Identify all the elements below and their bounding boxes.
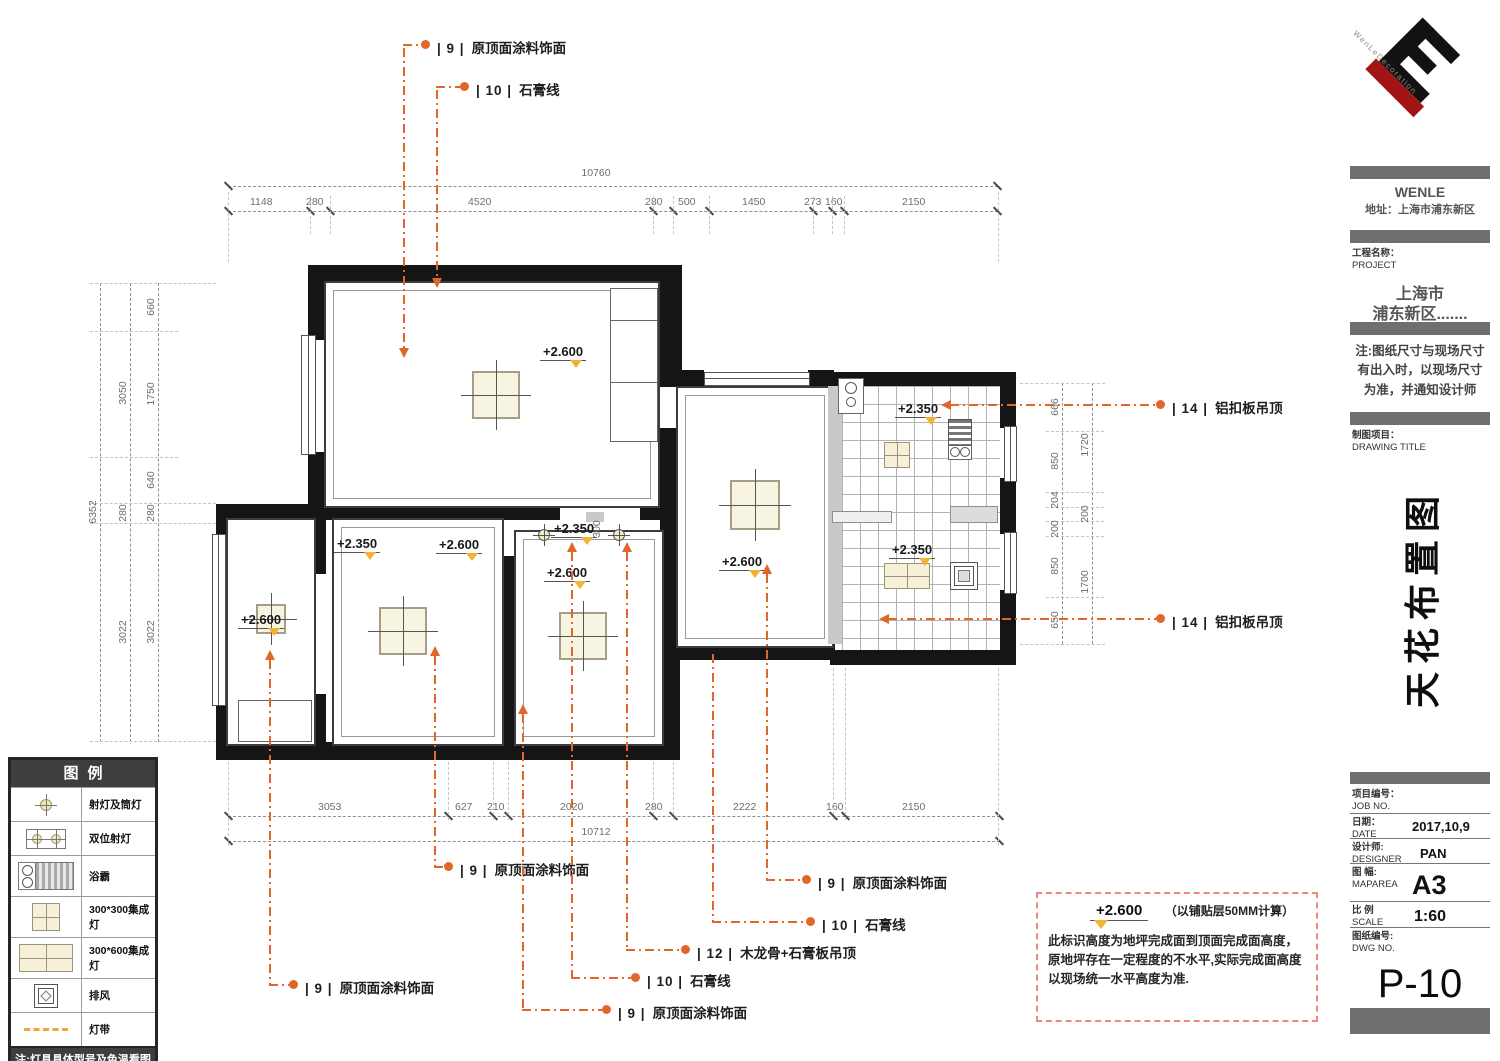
dimension-label: 3050 <box>117 381 129 404</box>
counter <box>950 506 998 523</box>
extension-line <box>833 668 834 820</box>
company-address: 地址：上海市浦东新区 <box>1350 201 1490 217</box>
window <box>301 335 316 455</box>
leader-line <box>766 574 768 880</box>
arrow-up-icon <box>430 646 440 656</box>
field-divider <box>1350 813 1490 814</box>
note-elevation: +2.600 <box>1090 902 1148 921</box>
legend-title: 图例 <box>11 760 155 787</box>
arrow-up-icon <box>622 542 632 552</box>
leader-dot-icon <box>602 1005 611 1014</box>
dimension-label: 1148 <box>250 196 273 208</box>
extension-line <box>1020 383 1105 384</box>
extension-line <box>673 762 674 820</box>
bath-heater-fans <box>948 445 972 460</box>
leader-dot-icon <box>1156 400 1165 409</box>
dimension-label: 160 <box>826 801 844 813</box>
elevation-triangle-icon <box>574 581 586 589</box>
field-divider <box>1350 863 1490 864</box>
legend-label: 排风 <box>81 979 155 1012</box>
divider-bar <box>1350 412 1490 425</box>
extension-line <box>493 762 494 820</box>
project-label: 工程名称：PROJECT <box>1352 248 1400 273</box>
dimension-label: 280 <box>117 504 129 522</box>
extension-line <box>998 668 999 846</box>
extension-line <box>448 762 449 820</box>
dimension-label: 640 <box>145 471 157 489</box>
dimension-line <box>100 283 101 742</box>
spotlight <box>613 529 625 541</box>
dimension-label: 660 <box>145 298 157 316</box>
ceiling-lamp <box>730 480 780 530</box>
dimension-label: 210 <box>487 801 505 813</box>
dimension-line <box>1062 383 1063 644</box>
dimension-label: 1720 <box>1079 433 1091 456</box>
bath-heater <box>948 419 972 447</box>
leader-dot-icon <box>444 862 453 871</box>
callout: | 14 |铝扣板吊顶 <box>1172 397 1283 417</box>
dimension-label: 6352 <box>87 500 99 523</box>
bath-heater-icon <box>11 856 81 896</box>
light-strip-icon <box>11 1013 81 1046</box>
elevation-triangle-icon <box>570 360 582 368</box>
dimension-line <box>228 841 1000 842</box>
leader-line <box>571 977 631 979</box>
arrow-down-icon <box>432 278 442 288</box>
leader-dot-icon <box>802 875 811 884</box>
arrow-left-icon <box>879 614 889 624</box>
field-job-no-label: 项目编号：JOB NO. <box>1352 789 1400 814</box>
arrow-up-icon <box>265 650 275 660</box>
leader-line <box>269 660 271 986</box>
legend-label: 射灯及筒灯 <box>81 788 155 821</box>
field-divider <box>1350 927 1490 928</box>
extension-line <box>998 192 999 262</box>
wall <box>308 265 324 340</box>
wall <box>308 265 682 281</box>
leader-line <box>434 656 436 868</box>
dimension-label: 2150 <box>902 196 925 208</box>
callout: | 9 |原顶面涂料饰面 <box>460 859 589 879</box>
callout: | 12 |木龙骨+石膏板吊顶 <box>697 942 856 962</box>
field-dwg-no-value: P-10 <box>1350 962 1490 1007</box>
elevation-triangle-icon <box>749 570 761 578</box>
company-logo: WenLeDecoration <box>1358 12 1474 138</box>
window <box>704 372 810 386</box>
dimension-label: 500 <box>678 196 696 208</box>
dimension-label: 1750 <box>145 382 157 405</box>
stove-vent <box>838 378 864 414</box>
spotlight <box>538 529 550 541</box>
legend-label: 300*600集成灯 <box>81 938 155 978</box>
field-scale-label: 比 例SCALE <box>1352 905 1383 930</box>
dimension-label: 160 <box>825 196 843 208</box>
legend-row: 浴霸 <box>11 855 155 896</box>
extension-line <box>90 331 178 332</box>
leader-line <box>522 714 524 1010</box>
wardrobe <box>610 382 658 442</box>
divider-bar <box>1350 166 1490 179</box>
dimension-line <box>158 283 159 742</box>
legend-row: 射灯及筒灯 <box>11 787 155 821</box>
leader-line <box>269 984 289 986</box>
window <box>212 534 226 706</box>
dimension-label: 3022 <box>117 620 129 643</box>
divider-bar <box>1350 1008 1490 1034</box>
dimension-label: 280 <box>306 196 324 208</box>
elevation-marker: +2.600 <box>238 612 284 629</box>
leader-line <box>888 618 1156 620</box>
elevation-marker: +2.600 <box>544 565 590 582</box>
legend-row: 300*300集成灯 <box>11 896 155 937</box>
legend-label: 浴霸 <box>81 856 155 896</box>
field-divider <box>1350 838 1490 839</box>
extension-line <box>330 196 331 234</box>
leader-line <box>950 404 1156 406</box>
legend-row: 灯带 <box>11 1012 155 1046</box>
extension-line <box>90 741 216 742</box>
extension-line <box>228 192 229 262</box>
project-name-line2: 浦东新区....... <box>1350 300 1490 324</box>
height-note-box: +2.600 （以铺贴层50MM计算） 此标识高度为地坪完成面到顶面完成面高度，… <box>1036 892 1318 1022</box>
legend: 图例 射灯及筒灯 双位射灯 <box>8 757 158 1061</box>
leader-line <box>712 921 806 923</box>
elevation-marker: +2.600 <box>719 554 765 571</box>
ceiling-lamp <box>559 612 607 660</box>
field-scale-value: 1:60 <box>1414 908 1446 926</box>
legend-footnote: 注:灯具具体型号及色温看图纸详细标识 <box>11 1046 155 1061</box>
exhaust-fan <box>950 562 978 590</box>
callout: | 9 |原顶面涂料饰面 <box>437 37 566 57</box>
extension-line <box>1020 644 1105 645</box>
dimension-label: 2150 <box>902 801 925 813</box>
elevation-triangle-icon <box>1094 920 1108 929</box>
site-note: 注:图纸尺寸与现场尺寸有出入时，以现场尺寸为准，并通知设计师 <box>1352 342 1488 400</box>
extension-line <box>508 762 509 820</box>
dimension-label: 666 <box>1049 398 1061 416</box>
arrow-up-icon <box>518 704 528 714</box>
drawing-sheet: +2.600 +2.350 +2.600 +2.350 +2.600 +2.60… <box>0 0 1500 1061</box>
leader-dot-icon <box>289 980 298 989</box>
field-dwg-no-label: 图纸编号:DWG NO. <box>1352 931 1395 956</box>
dimension-label: 200 <box>1079 505 1091 523</box>
drawing-title-label: 制图项目：DRAWING TITLE <box>1352 430 1426 455</box>
leader-dot-icon <box>460 82 469 91</box>
extension-line <box>845 668 846 820</box>
dimension-line <box>228 186 998 187</box>
panel-300x600-icon <box>11 938 81 978</box>
leader-dot-icon <box>806 917 815 926</box>
elevation-marker: +2.350 <box>889 542 935 559</box>
field-maparea-value: A3 <box>1412 870 1447 901</box>
callout: | 9 |原顶面涂料饰面 <box>618 1002 747 1022</box>
extension-line <box>228 762 229 846</box>
divider-bar <box>1350 230 1490 243</box>
ceiling-lamp <box>472 371 520 419</box>
divider-bar <box>1350 322 1490 335</box>
legend-label: 300*300集成灯 <box>81 897 155 937</box>
dimension-label: 3053 <box>318 801 341 813</box>
dimension-label: 1700 <box>1079 570 1091 593</box>
dimension-line <box>228 816 1000 817</box>
extension-line <box>1046 597 1104 598</box>
divider-bar <box>1350 772 1490 784</box>
callout: | 10 |石膏线 <box>647 970 731 990</box>
dimension-label: 3022 <box>145 620 157 643</box>
exhaust-fan-icon <box>11 979 81 1012</box>
wall <box>1000 372 1016 428</box>
extension-line <box>90 457 178 458</box>
dimension-label: 200 <box>1049 520 1061 538</box>
callout: | 10 |石膏线 <box>476 79 560 99</box>
dimension-label: 280 <box>145 504 157 522</box>
leader-dot-icon <box>1156 614 1165 623</box>
field-maparea-label: 图 幅:MAPAREA <box>1352 867 1398 892</box>
wall <box>676 370 704 386</box>
dimension-line <box>1092 383 1093 644</box>
extension-line <box>90 523 216 524</box>
arrow-up-icon <box>567 542 577 552</box>
legend-row: 300*600集成灯 <box>11 937 155 978</box>
elevation-marker: +2.350 <box>334 536 380 553</box>
extension-line <box>90 283 216 284</box>
dimension-line <box>228 211 998 212</box>
elevation-triangle-icon <box>364 552 376 560</box>
extension-line <box>1046 431 1104 432</box>
callout: | 10 |石膏线 <box>822 914 906 934</box>
leader-line <box>571 552 573 978</box>
legend-row: 双位射灯 <box>11 821 155 855</box>
spotlight-icon <box>11 788 81 821</box>
panel-300x300-icon <box>11 897 81 937</box>
callout: | 9 |原顶面涂料饰面 <box>305 977 434 997</box>
leader-line <box>403 44 421 46</box>
dimension-label: 1450 <box>742 196 765 208</box>
leader-line <box>626 552 628 950</box>
dimension-label: 627 <box>455 801 473 813</box>
callout: | 9 |原顶面涂料饰面 <box>818 872 947 892</box>
elevation-marker: +2.350 <box>895 401 941 418</box>
arrow-left-icon <box>941 400 951 410</box>
integrated-light-300x300 <box>884 442 910 468</box>
callout: | 14 |铝扣板吊顶 <box>1172 611 1283 631</box>
balcony-cabinet <box>238 700 312 742</box>
field-designer-value: PAN <box>1420 846 1446 861</box>
wardrobe <box>610 288 658 322</box>
arrow-up-icon <box>762 564 772 574</box>
extension-line <box>813 196 814 234</box>
elevation-marker: +2.600 <box>540 344 586 361</box>
legend-row: 排风 <box>11 978 155 1012</box>
dimension-label: 650 <box>1049 611 1061 629</box>
company-name: WENLE <box>1350 184 1490 200</box>
field-date-value: 2017,10,9 <box>1412 819 1470 834</box>
leader-line <box>626 949 681 951</box>
wall <box>808 370 834 386</box>
dimension-label-corridor: 300 <box>591 520 603 538</box>
arrow-down-icon <box>399 348 409 358</box>
drawing-title: 天花布置图 <box>1394 488 1446 708</box>
field-divider <box>1350 901 1490 902</box>
elevation-marker: +2.600 <box>436 537 482 554</box>
extension-line <box>310 196 311 234</box>
dimension-label: 2222 <box>733 801 756 813</box>
leader-line <box>436 86 460 88</box>
note-body: 此标识高度为地坪完成面到顶面完成面高度，原地坪存在一定程度的不水平,实际完成面高… <box>1048 932 1306 988</box>
leader-dot-icon <box>631 973 640 982</box>
leader-line <box>712 654 714 922</box>
double-spotlight-icon <box>11 822 81 855</box>
extension-line <box>653 762 654 820</box>
leader-dot-icon <box>681 945 690 954</box>
window <box>1004 426 1017 482</box>
dimension-label: 204 <box>1049 491 1061 509</box>
extension-line <box>844 196 845 234</box>
wall <box>1000 478 1016 534</box>
extension-line <box>653 196 654 234</box>
wall <box>222 504 312 518</box>
legend-label: 双位射灯 <box>81 822 155 855</box>
wall <box>216 504 226 536</box>
elevation-triangle-icon <box>268 628 280 636</box>
elevation-triangle-icon <box>581 537 593 545</box>
elevation-triangle-icon <box>919 558 931 566</box>
extension-line <box>832 196 833 234</box>
legend-label: 灯带 <box>81 1013 155 1046</box>
dimension-label: 850 <box>1049 452 1061 470</box>
note-suffix: （以铺贴层50MM计算） <box>1165 904 1294 918</box>
window <box>1004 532 1017 594</box>
dimension-label: 10712 <box>566 826 626 838</box>
elevation-triangle-icon <box>925 417 937 425</box>
wardrobe <box>610 320 658 384</box>
counter <box>832 511 892 523</box>
ceiling-lamp <box>379 607 427 655</box>
wall <box>830 650 1012 665</box>
dimension-line <box>130 283 131 742</box>
dimension-label: 4520 <box>468 196 491 208</box>
leader-dot-icon <box>421 40 430 49</box>
leader-line <box>522 1009 602 1011</box>
extension-line <box>673 196 674 234</box>
extension-line <box>709 196 710 234</box>
dimension-label: 10760 <box>566 167 626 179</box>
leader-line <box>766 879 802 881</box>
leader-line <box>436 90 438 282</box>
elevation-triangle-icon <box>466 553 478 561</box>
leader-line <box>403 48 405 348</box>
integrated-light-300x600 <box>884 563 930 589</box>
dimension-label: 850 <box>1049 557 1061 575</box>
